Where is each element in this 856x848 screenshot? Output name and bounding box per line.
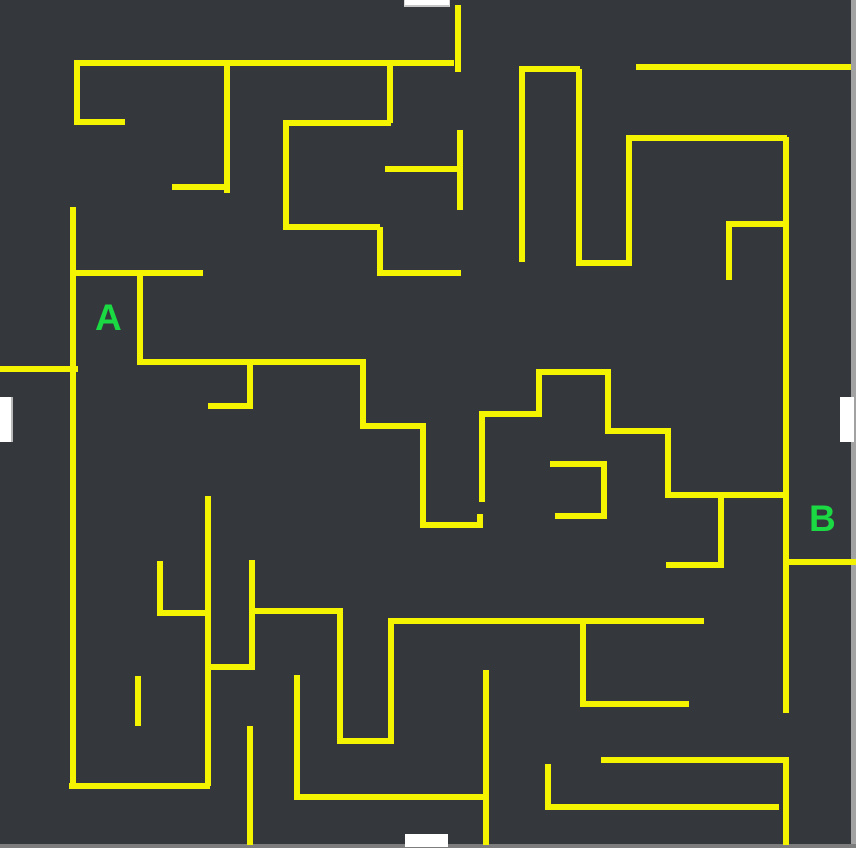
maze-wall — [576, 69, 582, 263]
maze-wall — [477, 514, 483, 524]
maze-wall — [283, 123, 289, 227]
maze-wall — [387, 63, 393, 123]
maze-wall — [385, 166, 460, 172]
maze-wall — [157, 561, 163, 616]
maze-wall — [247, 359, 253, 409]
maze-wall — [69, 783, 210, 789]
maze-wall — [665, 428, 671, 498]
maze-label-b: B — [809, 500, 836, 537]
maze-wall — [479, 411, 485, 502]
maze-wall — [247, 726, 253, 845]
maze-opening-top — [404, 0, 450, 7]
maze-wall — [337, 738, 394, 744]
maze-wall — [605, 369, 611, 434]
maze-wall — [208, 403, 253, 409]
maze-wall — [636, 64, 851, 70]
maze-wall — [135, 676, 141, 726]
maze-wall — [555, 513, 607, 519]
maze-wall — [536, 369, 611, 375]
maze-wall — [726, 224, 732, 280]
maze-wall — [205, 496, 211, 786]
maze-wall — [337, 608, 343, 744]
maze-wall — [626, 136, 632, 264]
maze-wall — [283, 120, 391, 126]
maze-wall — [390, 618, 704, 624]
maze-wall — [360, 359, 366, 426]
maze-wall — [576, 260, 632, 266]
maze-wall — [420, 522, 483, 528]
maze-wall — [249, 560, 255, 670]
maze-wall — [581, 701, 689, 707]
maze-wall — [601, 757, 784, 763]
maze-wall — [626, 135, 787, 141]
maze-wall — [224, 63, 230, 193]
maze-canvas: AB — [0, 0, 856, 848]
maze-wall — [726, 221, 786, 227]
maze-wall — [783, 757, 789, 845]
maze-wall — [377, 227, 383, 273]
maze-wall — [295, 794, 486, 800]
maze-wall — [74, 119, 125, 125]
maze-wall — [137, 273, 143, 362]
maze-wall — [545, 804, 779, 810]
maze-wall — [205, 664, 253, 670]
maze-wall — [455, 5, 461, 72]
maze-wall — [665, 492, 786, 498]
maze-wall — [360, 423, 425, 429]
maze-wall — [74, 60, 454, 66]
maze-wall — [70, 207, 76, 789]
maze-wall — [74, 63, 80, 125]
maze-wall — [718, 495, 724, 566]
maze-wall — [249, 608, 341, 614]
maze-wall — [666, 562, 724, 568]
maze-wall — [457, 130, 463, 210]
maze-opening-right — [840, 397, 854, 442]
maze-wall — [283, 224, 380, 230]
maze-wall — [601, 461, 607, 519]
maze-wall — [783, 559, 856, 565]
maze-wall — [388, 618, 394, 744]
maze-wall — [580, 621, 586, 707]
maze-wall — [479, 411, 540, 417]
maze-wall — [483, 670, 489, 845]
maze-wall — [294, 675, 300, 800]
maze-wall — [420, 423, 426, 528]
maze-label-a: A — [95, 299, 122, 336]
maze-wall — [0, 366, 78, 372]
maze-wall — [157, 610, 208, 616]
maze-wall — [377, 270, 461, 276]
maze-wall — [536, 369, 542, 417]
maze-opening-left — [0, 397, 13, 442]
maze-wall — [172, 184, 228, 190]
maze-wall — [519, 69, 525, 262]
maze-wall — [519, 66, 580, 72]
maze-wall — [550, 461, 607, 467]
maze-opening-bottom — [405, 834, 448, 847]
maze-wall — [605, 428, 669, 434]
